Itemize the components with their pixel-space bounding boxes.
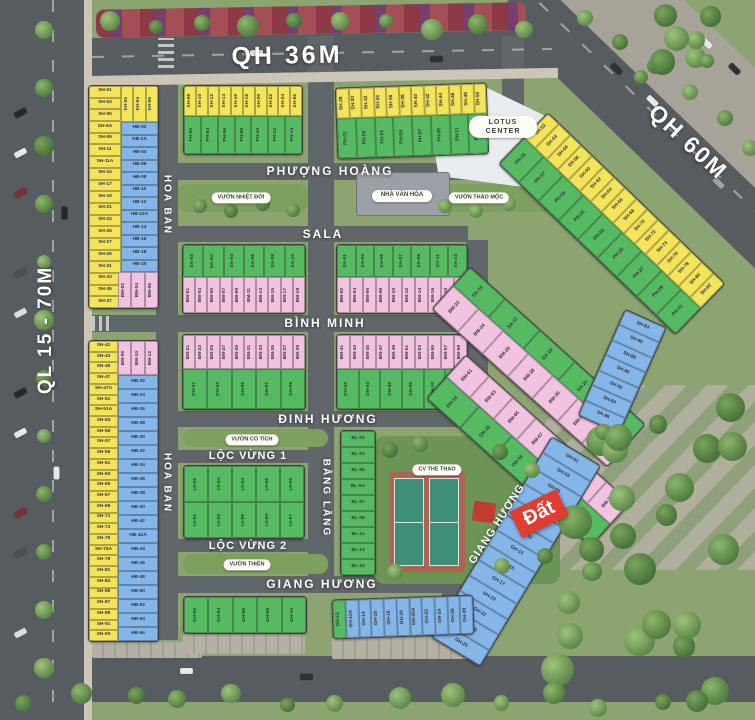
lot: SH-09 [89, 133, 121, 145]
lot-label: SA-10 [292, 254, 297, 268]
lot-label: HB-14 [133, 226, 147, 231]
lot: SH-87 [89, 598, 118, 609]
tree [537, 548, 553, 564]
lot: PH-05 [374, 117, 394, 158]
tree [557, 623, 583, 649]
tree [686, 690, 708, 712]
lot: SH-18 [243, 86, 255, 116]
lot-label: BM-16 [432, 288, 437, 302]
lot: HB-14 [121, 222, 158, 235]
lot: PH-06 [218, 116, 235, 154]
lot: SA-08 [264, 245, 284, 277]
lot-label: HB-10 [133, 188, 147, 193]
lot-label: SA-07 [400, 254, 405, 268]
lot: SH-55 [89, 427, 118, 438]
lot-label: DH-16 [480, 425, 493, 439]
lot-label: GH-22 [426, 609, 431, 623]
lot: SH-11A [89, 156, 121, 168]
lot-label: SH-22 [270, 94, 275, 108]
lot-label: BM-07 [223, 288, 228, 302]
lot-label: LV-07 [290, 514, 295, 526]
lot: HB-02 [121, 122, 158, 135]
lot: GH-04 [208, 597, 232, 633]
tree [389, 687, 411, 709]
lot-label: SH-67 [97, 494, 111, 499]
tree [612, 34, 628, 50]
lot: SA-07 [393, 245, 412, 277]
lot: HB-54 [118, 613, 158, 627]
lot-label: SH-69 [97, 505, 111, 510]
lot: SH-57 [89, 437, 118, 448]
lot: SH-16 [231, 86, 243, 116]
lot-label: GH-08 [267, 608, 272, 622]
lot-label: BM-12 [406, 288, 411, 302]
tree [524, 462, 540, 478]
lot-label: SH-91 [97, 623, 111, 628]
lot: BL-05 [341, 463, 375, 479]
lot: GH-02 [184, 597, 208, 633]
lot: HB-24 [118, 389, 158, 403]
lot-label: SH-79 [97, 558, 111, 563]
street-label-giang-huong: GIANG HƯƠNG [266, 577, 378, 591]
lot-strip-L2_hb: HB-22HB-24HB-26HB-28HB-30HB-32HB-34HB-36… [118, 375, 158, 641]
lot-label: DH-09 [290, 382, 295, 396]
lot-label: GH-06 [243, 608, 248, 622]
lot: HB-22 [118, 375, 158, 389]
car [62, 207, 68, 220]
lot-label: SH-90 [615, 366, 629, 376]
lot: SA-01 [337, 245, 356, 277]
lot: HB-28 [118, 417, 158, 431]
lot-label: SH-57 [97, 440, 111, 445]
lot: BM-10 [131, 341, 144, 375]
lot-label: BM-13 [260, 288, 265, 302]
tree [654, 4, 677, 27]
lot-label: SH-20 [258, 94, 263, 108]
lot-label: BM-09 [236, 288, 241, 302]
tree [557, 591, 580, 614]
lot-label: HB-48 [131, 576, 145, 581]
lot-label: BM-26 [499, 347, 512, 361]
lot: DH-09 [281, 369, 305, 409]
lot: HB-42 [118, 515, 158, 529]
lot-label: PH-15 [515, 154, 528, 167]
lot-label: SA-09 [418, 254, 423, 268]
lot-strip-L1_hb: HB-02HB-2AHB-04HB-06HB-08HB-10HB-12HB-12… [121, 122, 158, 272]
tree [656, 504, 677, 525]
lot-label: BM-51 [406, 345, 411, 359]
lot-label: HB-32 [131, 450, 145, 455]
lot-label: PH-23 [594, 229, 607, 242]
lot: LV-07 [280, 502, 304, 538]
lot-label: SH-96 [595, 411, 609, 421]
lot-label: SH-27 [98, 241, 112, 246]
lot-label: SA-02 [191, 254, 196, 268]
lot: SH-46 [448, 84, 462, 114]
tennis-court [394, 478, 424, 566]
lot-label: SH-03 [98, 101, 112, 106]
lot: BM-47 [376, 335, 389, 369]
lot: DH-05 [232, 369, 256, 409]
lot: BL-15 [341, 559, 375, 575]
tree [589, 699, 607, 717]
lot: BM-11 [244, 277, 256, 313]
lot-label: BM-15 [272, 288, 277, 302]
lot: HB-04 [121, 147, 158, 160]
tree [286, 203, 300, 217]
lot: SH-27 [89, 238, 121, 250]
lot: HB-42A [118, 529, 158, 543]
tree [541, 653, 574, 686]
lot: SH-05 [89, 109, 121, 121]
street-label-loc-vung-2: LỘC VỪNG 2 [209, 540, 287, 552]
lot: BM-29 [232, 335, 244, 369]
lot: SH-75A [89, 545, 118, 556]
lot: SA-09 [411, 245, 430, 277]
lot: SH-04 [133, 86, 145, 122]
lot-label: SA-2A [211, 254, 216, 268]
lot: SH-59 [89, 448, 118, 459]
lot-label: SH-02 [125, 97, 130, 111]
lot-label: BL-01 [351, 437, 364, 442]
lot: SH-89 [89, 609, 118, 620]
lot-label: BL-07 [351, 501, 364, 506]
lot-label: SA-04 [231, 254, 236, 268]
lot: PH-07 [412, 115, 432, 156]
street-binh-minh [88, 315, 468, 332]
lot-strip-T1_sh: SH-08SH-10SH-12SH-14SH-16SH-18SH-20SH-22… [184, 86, 302, 116]
lot-label: SH-75A [95, 548, 112, 553]
lot-label: SH-36 [390, 95, 395, 109]
lot: SH-15 [89, 168, 121, 180]
lot-strip-B2_gh: GH-02GH-04GH-06GH-08GH-10 [184, 597, 306, 633]
lot-label: BM-61 [461, 370, 474, 384]
lot-label: GH-12 [337, 612, 342, 626]
lot-label: DH-04 [367, 382, 372, 396]
lot: BM-43 [350, 335, 363, 369]
lot: HB-08 [121, 172, 158, 185]
lot-label: SH-43 [97, 355, 111, 360]
lot-strip-BL: BL-01BL-03BL-05BL-5ABL-07BL-09BL-11BL-13… [341, 431, 375, 575]
lot: SH-44 [436, 85, 450, 115]
car [430, 56, 443, 62]
lot-strip-M3_dh: DH-01DH-03DH-05DH-07DH-09 [183, 369, 305, 409]
lot: SH-47A [89, 384, 118, 395]
tree [650, 49, 676, 75]
lot: SH-47 [89, 373, 118, 384]
lot-label: SA-03 [362, 254, 367, 268]
lot-label: SH-87 [97, 601, 111, 606]
tree [100, 11, 120, 31]
lot-label: SH-63 [97, 473, 111, 478]
lot-label: PH-29 [652, 286, 665, 299]
tree [168, 690, 186, 708]
lot: SH-21 [89, 203, 121, 215]
tree [468, 14, 488, 34]
lot-label: SH-05 [98, 113, 112, 118]
lot-label: BL-05 [351, 469, 364, 474]
lot: SH-83 [89, 577, 118, 588]
lot-label: BM-10 [136, 351, 141, 365]
lot-block-LV: LV-02LV-2ALV-04LV-06LV-08LV-01LV-03LV-05… [183, 465, 305, 539]
lot: BM-12 [145, 341, 158, 375]
lot-label: GH-04 [218, 608, 223, 622]
tree [700, 54, 714, 68]
lot-label: GH-01 [564, 454, 579, 465]
lot-label: LV-5A [266, 513, 271, 526]
lot-label: SH-37 [98, 300, 112, 305]
lot: SH-30 [348, 88, 362, 118]
tree [221, 684, 240, 703]
lot: SH-67 [89, 491, 118, 502]
lot: SH-35 [89, 285, 121, 297]
lot-label: SH-41 [97, 344, 111, 349]
lot: SH-51A [89, 405, 118, 416]
lot: BM-08 [376, 277, 389, 313]
lot: SH-12 [208, 86, 220, 116]
lot-strip-T1_ph: PH-02PH-04PH-06PH-08PH-10PH-12PH-14 [184, 116, 302, 154]
lot: SH-45 [89, 362, 118, 373]
lot-label: BM-03 [199, 288, 204, 302]
lot-label: SH-19 [98, 195, 112, 200]
lot-label: SH-14 [223, 94, 228, 108]
lot: HB-44 [118, 543, 158, 557]
lot-label: BM-08 [380, 288, 385, 302]
lot: DH-08 [402, 369, 424, 409]
tree [35, 195, 52, 212]
car [54, 467, 60, 480]
masterplan-map: QH 36M QH 60M QL 15 - 70M PHƯỢNG HOÀNG S… [0, 0, 755, 720]
lot: SH-23 [89, 215, 121, 227]
lot-label: BM-23 [199, 345, 204, 359]
road-label-ql15: QL 15 - 70M [35, 266, 57, 394]
lot-label: GH-25 [453, 638, 468, 649]
lot: GH-08 [257, 597, 281, 633]
lot-label: SH-44 [440, 93, 445, 107]
lot-label: HB-46 [131, 562, 145, 567]
tree [624, 553, 656, 585]
lot: SH-11 [89, 144, 121, 156]
lot-label: SH-84 [635, 321, 649, 331]
lot: SH-40 [411, 86, 425, 116]
tree [693, 434, 722, 463]
lot: HB-26 [118, 403, 158, 417]
court-surround [389, 472, 465, 572]
lot: BM-55 [428, 335, 441, 369]
lot-label: HB-56 [131, 632, 145, 637]
lot: LV-2A [208, 466, 232, 502]
lot: LV-5A [256, 502, 280, 538]
lot: HB-40 [118, 501, 158, 515]
lot: SH-17 [89, 180, 121, 192]
tree [708, 534, 739, 565]
lot: LV-01 [184, 502, 208, 538]
lot: BM-39 [293, 335, 305, 369]
landmark-nha-van-hoa: NHÀ VĂN HÓA [372, 190, 432, 202]
lot: PH-02 [184, 116, 201, 154]
lot-label: LV-02 [194, 478, 199, 490]
lot-label: PH-17 [535, 173, 548, 186]
tree [35, 79, 52, 96]
lot-label: HB-50 [131, 590, 145, 595]
lot-label: SH-08 [188, 94, 193, 108]
lot: SA-11 [430, 245, 449, 277]
lot: SH-41 [89, 341, 118, 352]
lot: HB-10 [121, 185, 158, 198]
lot-block-M1: SA-02SA-2ASA-04SA-06SA-08SA-10BM-01BM-03… [182, 244, 306, 314]
lot-label: SH-92 [608, 381, 622, 391]
tree [494, 695, 510, 711]
lot-label: SH-40 [415, 94, 420, 108]
lot: BM-02 [118, 272, 131, 308]
lot: BL-01 [341, 431, 375, 447]
lot-block-L2: SH-41SH-43SH-45SH-47SH-47ASH-51SH-51ASH-… [88, 340, 159, 642]
lot: LV-06 [256, 466, 280, 502]
lot: HB-36 [118, 473, 158, 487]
lot-strip-M1_bm: BM-01BM-03BM-05BM-07BM-09BM-11BM-13BM-15… [183, 277, 305, 313]
lot-label: HB-26 [131, 408, 145, 413]
lot-label: SH-94 [602, 396, 616, 406]
lot: GH-28 [460, 596, 474, 634]
tree [687, 31, 704, 48]
lot-label: SA-15 [473, 286, 486, 299]
lot-label: LV-03 [218, 514, 223, 526]
lot: SH-5A [89, 121, 121, 133]
lot: BM-51 [402, 335, 415, 369]
lot: HB-20 [121, 260, 158, 273]
tree [682, 84, 698, 100]
lot-label: SH-06 [149, 97, 154, 111]
lot-label: GH-18 [388, 610, 393, 624]
lot-label: SA-01 [344, 254, 349, 268]
lot-label: SH-12 [211, 94, 216, 108]
lot: BM-09 [232, 277, 244, 313]
lot-strip-M3_bm: BM-21BM-23BM-25BM-27BM-29BM-31BM-33BM-35… [183, 335, 305, 369]
lot: BM-01 [183, 277, 195, 313]
lot: SH-81 [89, 566, 118, 577]
lot-label: SH-09 [98, 136, 112, 141]
lot: SH-93 [89, 630, 118, 641]
lot-label: SH-23 [98, 218, 112, 223]
lot-block-B2: GH-02GH-04GH-06GH-08GH-10 [183, 596, 307, 634]
lot: SH-28 [336, 88, 350, 118]
lot: SA-04 [224, 245, 244, 277]
lot: HB-18 [121, 247, 158, 260]
lot: SH-79 [89, 555, 118, 566]
lot-label: SH-53 [97, 419, 111, 424]
lot-strip-LV_r1: LV-02LV-2ALV-04LV-06LV-08 [184, 466, 304, 502]
lot-label: GH-20A [413, 608, 418, 626]
lot-block-M3: BM-21BM-23BM-25BM-27BM-29BM-31BM-33BM-35… [182, 334, 306, 410]
lot-label: SH-45 [97, 365, 111, 370]
lot: SH-34 [373, 87, 387, 117]
lot-label: PH-02 [190, 128, 195, 142]
lot-label: GH-17 [490, 577, 505, 588]
lot-block-BL: BL-01BL-03BL-05BL-5ABL-07BL-09BL-11BL-13… [340, 430, 376, 576]
lot-block-B3: GH-12GH-12AGH-14GH-16GH-18GH-20GH-20AGH-… [331, 595, 474, 640]
lot-label: BL-5A [351, 485, 365, 490]
lot-label: PH-03 [363, 131, 368, 145]
lot: SH-50 [473, 83, 487, 113]
lot: BM-45 [363, 335, 376, 369]
lot: HB-12A [121, 210, 158, 223]
lot-label: BM-67 [531, 433, 544, 447]
lot: SH-75 [89, 534, 118, 545]
lot-strip-M4_bm: BM-41BM-43BM-45BM-47BM-49BM-51BM-53BM-55… [337, 335, 467, 369]
lot: SH-24 [278, 86, 290, 116]
lot-label: BM-19 [297, 288, 302, 302]
lot-label: SH-26 [294, 94, 299, 108]
lot: GH-10 [282, 597, 306, 633]
lot-label: GH-02 [194, 608, 199, 622]
tree [494, 558, 510, 574]
lot: HB-06 [121, 160, 158, 173]
lot-label: BM-14 [419, 288, 424, 302]
lot-label: PH-14 [291, 128, 296, 142]
lot-label: HB-44 [131, 548, 145, 553]
tree [665, 473, 694, 502]
lot-label: BM-08 [122, 351, 127, 365]
lot-block-T1: SH-08SH-10SH-12SH-14SH-16SH-18SH-20SH-22… [183, 85, 303, 155]
street-label-bang-lang: BẰNG LĂNG [321, 459, 332, 538]
lot-label: BM-02 [341, 288, 346, 302]
tree [382, 442, 398, 458]
lot-label: BL-13 [351, 549, 364, 554]
road-label-qh36: QH 36M [231, 41, 343, 72]
road-bottom [0, 656, 755, 702]
lot: BL-07 [341, 495, 375, 511]
lot-label: PH-19 [554, 192, 567, 205]
lot: SH-08 [184, 86, 196, 116]
tree [441, 683, 465, 707]
lot-label: PH-11 [457, 128, 462, 142]
lot-label: SH-21 [98, 206, 112, 211]
lot-label: PH-31 [672, 305, 685, 318]
lot: SH-65 [89, 480, 118, 491]
lot-strip-T2_ph: PH-01PH-03PH-05PH-5APH-07PH-09PH-11PH-13 [337, 113, 488, 158]
lot: SA-03 [356, 245, 375, 277]
lot: PH-12 [268, 116, 285, 154]
lot-label: SH-73 [97, 526, 111, 531]
lot-label: SH-71 [97, 515, 111, 520]
lot: SH-85 [89, 588, 118, 599]
lot-label: HB-34 [131, 464, 145, 469]
lot-label: SH-83 [97, 580, 111, 585]
lot-label: GH-28 [464, 608, 469, 622]
tree [36, 544, 52, 560]
lot-label: PH-09 [438, 128, 443, 142]
lot: HB-56 [118, 627, 158, 641]
lot: BM-15 [268, 277, 280, 313]
tree [609, 485, 634, 510]
lot-label: GH-26 [451, 608, 456, 622]
lot-strip-B3_g: GH-12 [332, 600, 346, 638]
lot: BM-57 [441, 335, 454, 369]
lot-label: SH-38 [402, 94, 407, 108]
lot: PH-14 [285, 116, 302, 154]
lot-label: LV-04 [242, 478, 247, 490]
lot-label: SH-89 [97, 612, 111, 617]
lot-label: SH-86 [628, 336, 642, 346]
lot: BM-06 [145, 272, 158, 308]
lot-label: HB-36 [131, 478, 145, 483]
lot-label: BM-11 [248, 288, 253, 302]
lot-label: BM-25 [211, 345, 216, 359]
lot-label: BM-21 [187, 345, 192, 359]
lot: SH-91 [89, 620, 118, 631]
lot-label: SH-32 [365, 96, 370, 110]
lot-label: SH-5A [98, 125, 112, 130]
